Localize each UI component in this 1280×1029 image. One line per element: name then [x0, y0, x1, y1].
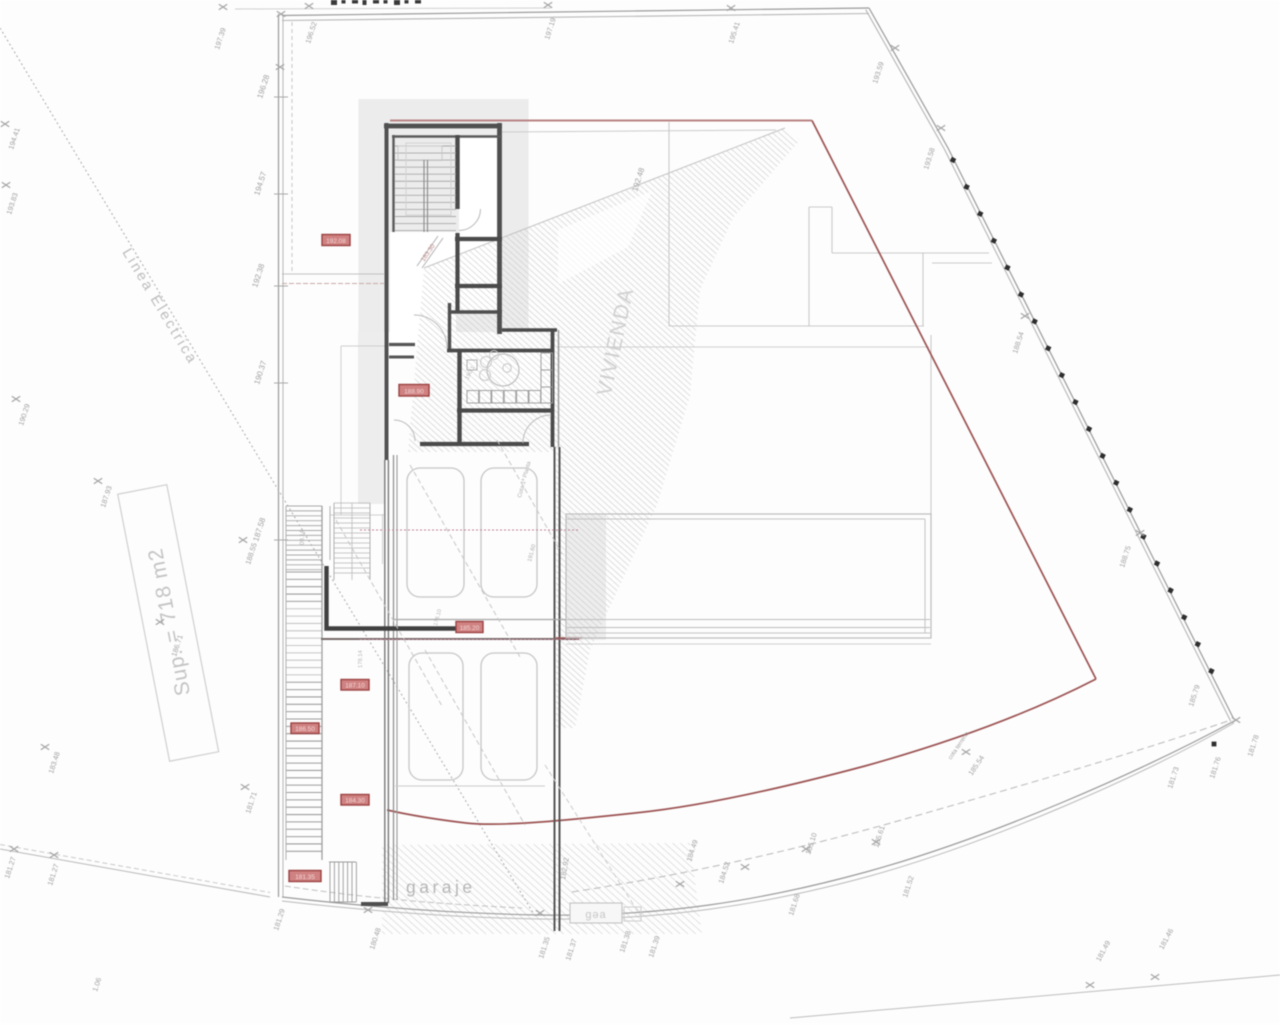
- svg-text:184.30: 184.30: [345, 797, 365, 804]
- svg-text:178.14: 178.14: [358, 649, 364, 668]
- svg-text:09.14: 09.14: [300, 529, 306, 545]
- svg-text:187.10: 187.10: [345, 682, 365, 689]
- svg-text:185.20: 185.20: [460, 625, 480, 632]
- svg-text:192.08: 192.08: [326, 238, 346, 245]
- svg-text:188.90: 188.90: [404, 388, 424, 395]
- svg-text:garaje: garaje: [406, 877, 476, 897]
- svg-text:gəa: gəa: [585, 909, 606, 921]
- svg-text:186.50: 186.50: [295, 726, 315, 733]
- svg-text:181.35: 181.35: [295, 874, 315, 881]
